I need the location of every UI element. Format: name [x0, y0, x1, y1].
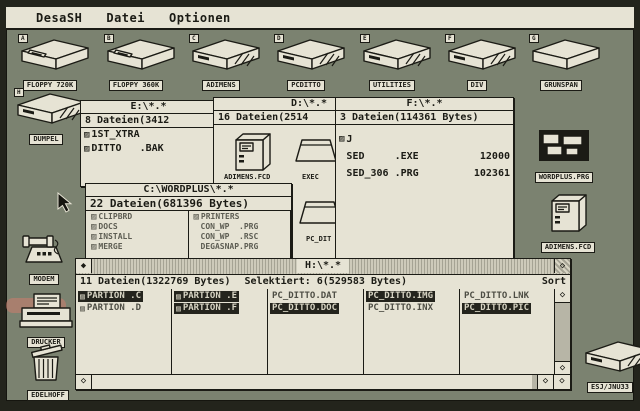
file-entry[interactable]: ▨INSTALL	[88, 232, 186, 242]
file-entry-selected[interactable]: PC_DITTO.IMG	[366, 291, 435, 302]
file-entry-selected[interactable]: PC_DITTO.PIC	[462, 303, 531, 314]
drive-icon-gruenspan[interactable]: G GRÜNSPAN	[519, 36, 603, 95]
file-entry-selected[interactable]: ▨PARTION .F	[174, 303, 239, 314]
file-entry-selected[interactable]: PC_DITTO.DOC	[270, 303, 339, 314]
file-name: PC_DITTO.DAT	[272, 291, 337, 302]
window-f: F:\*.* 3 Dateien(114361 Bytes) ▨J ▨SED .…	[335, 97, 514, 262]
binder-icon	[544, 192, 592, 234]
drive-letter: B	[104, 34, 114, 43]
file-name: CON_WP .PRG	[201, 222, 259, 232]
file-entry-selected[interactable]: ▨PARTION .E	[174, 291, 239, 302]
file-name: PARTION .E	[183, 291, 237, 302]
menu-datei[interactable]: Datei	[106, 11, 145, 25]
window-f-info-text: 3 Dateien(114361 Bytes)	[340, 111, 478, 124]
file-name: 1ST_XTRA	[91, 128, 139, 142]
drive-icon-utilities[interactable]: E UTILITIES	[350, 36, 434, 95]
file-name: CON_WP .RSC	[201, 232, 259, 242]
window-e: E:\*.* 8 Dateien(3412 ▨1ST_XTRA ▨DITTO .…	[80, 100, 217, 187]
drive-letter: E	[360, 34, 370, 43]
drive-icon-label: DUMPEL	[29, 134, 62, 145]
file-name: DOCS	[98, 222, 117, 232]
selected-count-text: Selektiert: 6(529583 Bytes)	[245, 275, 408, 289]
horizontal-scrollbar[interactable]: ◇ ◇ ◇	[76, 374, 570, 389]
file-icon-label: ADIMENS.FCD	[224, 173, 270, 181]
drive-icon-dumpel[interactable]: H DUMPEL	[4, 90, 88, 149]
file-entry[interactable]: PC_DITTO.DAT	[270, 291, 339, 302]
drive-letter: G	[529, 34, 539, 43]
desktop-file-label: WORDPLUS.PRG	[535, 172, 594, 183]
scroll-left-icon[interactable]: ◇	[76, 375, 92, 389]
drive-letter: D	[274, 34, 284, 43]
file-marker-icon: ▨	[176, 303, 181, 314]
file-entry[interactable]: ▨1ST_XTRA	[81, 128, 216, 142]
file-name: INSTALL	[98, 232, 132, 242]
folder-label: PC_DIT	[306, 235, 331, 243]
window-h-info: 11 Dateien(1322769 Bytes) Selektiert: 6(…	[76, 275, 570, 290]
application-icon	[536, 128, 592, 164]
window-sizer-icon[interactable]: ◇	[553, 375, 570, 389]
window-h: ◆ H:\*.* ◇ 11 Dateien(1322769 Bytes) Sel…	[75, 258, 571, 390]
desktop-file-wordplus[interactable]: WORDPLUS.PRG	[518, 128, 610, 187]
window-c: C:\WORDPLUS\*.* 22 Dateien(681396 Bytes)…	[85, 183, 292, 263]
file-count-text: 11 Dateien(1322769 Bytes)	[80, 275, 231, 289]
menu-bar: DesaSH Datei Optionen	[6, 7, 634, 30]
file-entry[interactable]: ▨DITTO .BAK	[81, 142, 216, 156]
printer-icon	[18, 292, 74, 329]
window-e-info-text: 8 Dateien(3412	[85, 114, 169, 127]
drive-icon-label: ADIMENS	[202, 80, 240, 91]
file-name: DITTO .BAK	[91, 142, 163, 156]
file-size: 102361	[474, 165, 510, 182]
file-name: PC_DITTO.INX	[368, 303, 433, 314]
folder-label: EXEC	[302, 173, 319, 181]
drive-icon-floppy360k[interactable]: B FLOPPY 360K	[94, 36, 178, 95]
scrollbar-thumb[interactable]	[92, 375, 532, 389]
folder-icon-exec[interactable]: EXEC	[294, 135, 338, 169]
file-entry[interactable]: ▨DOCS	[88, 222, 186, 232]
file-marker-icon: ▨	[80, 291, 85, 302]
file-name: J	[346, 131, 352, 148]
file-marker-icon: ▨	[91, 232, 96, 242]
file-name: PARTION .D	[87, 303, 141, 314]
file-entry[interactable]: DEGASNAP.PRG	[191, 242, 289, 252]
file-column: ▨PRINTERS CON_WP .PRG CON_WP .RSC DEGASN…	[189, 211, 292, 263]
desktop-file-label: ADIMENS.FCD	[541, 242, 595, 253]
file-name: SED_306 .PRG	[346, 165, 418, 182]
file-entry[interactable]: ▨J	[336, 131, 513, 148]
window-h-file-area: ▨PARTION .C ▨PARTION .D ▨PARTION .E ▨PAR…	[76, 289, 555, 375]
file-name: PC_DITTO.PIC	[464, 303, 529, 314]
file-marker-icon: ▨	[84, 142, 89, 156]
telephone-icon	[22, 232, 66, 266]
desktop-file-adimens[interactable]: ADIMENS.FCD	[522, 192, 614, 257]
file-name: PARTION .F	[183, 303, 237, 314]
file-entry[interactable]: CON_WP .PRG	[191, 222, 289, 232]
window-h-titlebar[interactable]: ◆ H:\*.* ◇	[76, 259, 570, 275]
file-column: PC_DITTO.LNK PC_DITTO.PIC	[460, 289, 555, 375]
drive-icon-label: DIV	[467, 80, 488, 91]
drive-letter: C	[189, 34, 199, 43]
file-marker-icon: ▨	[91, 222, 96, 232]
sort-label[interactable]: Sort	[542, 275, 566, 289]
drive-icon-div[interactable]: F DIV	[435, 36, 519, 95]
file-name: PRINTERS	[201, 212, 240, 222]
trashcan-icon	[26, 344, 70, 382]
file-marker-icon: ▨	[91, 212, 96, 222]
file-column: ▨PARTION .E ▨PARTION .F	[172, 289, 268, 375]
drive-letter: H	[14, 88, 24, 97]
file-column: ▨PARTION .C ▨PARTION .D	[76, 289, 172, 375]
drive-icon-label: GRÜNSPAN	[540, 80, 582, 91]
file-entry[interactable]: PC_DITTO.LNK	[462, 291, 531, 302]
file-marker-icon: ▨	[194, 212, 199, 222]
modem-icon-slot[interactable]: MODEM	[6, 232, 82, 289]
file-name: CLIPBRD	[98, 212, 132, 222]
scroll-up-icon[interactable]: ◇	[555, 289, 570, 303]
file-entry[interactable]: PC_DITTO.INX	[366, 303, 435, 314]
drive-letter: F	[445, 34, 455, 43]
vertical-scrollbar[interactable]: ◇ ◇	[554, 289, 570, 375]
file-name: PC_DITTO.IMG	[368, 291, 433, 302]
file-entry[interactable]: ▨SED .EXE 12000	[336, 148, 513, 165]
drive-icon-label: FLOPPY 360K	[109, 80, 163, 91]
scroll-down-icon[interactable]: ◇	[555, 361, 570, 375]
drive-icon-pcditto[interactable]: D PCDITTO	[264, 36, 348, 95]
file-entry[interactable]: ▨CLIPBRD	[88, 212, 186, 222]
window-h-title: H:\*.*	[297, 259, 349, 273]
scroll-right-icon[interactable]: ◇	[537, 375, 553, 389]
window-c-info: 22 Dateien(681396 Bytes)	[86, 197, 291, 211]
window-f-titlebar[interactable]: F:\*.*	[336, 98, 513, 111]
file-name: PC_DITTO.DOC	[272, 303, 337, 314]
file-column: PC_DITTO.DAT PC_DITTO.DOC	[268, 289, 364, 375]
window-e-info: 8 Dateien(3412	[81, 114, 216, 128]
close-box-icon[interactable]: ◆	[76, 259, 92, 273]
drive-icon-floppy720k[interactable]: A FLOPPY 720K	[8, 36, 92, 95]
file-marker-icon: ▨	[80, 303, 85, 314]
drive-letter: A	[18, 34, 28, 43]
file-name: MERGE	[98, 242, 122, 252]
drive-icon-adimens[interactable]: C ADIMENS	[179, 36, 263, 95]
file-icon-adimens-fcd[interactable]: ADIMENS.FCD	[228, 131, 276, 177]
disk-box-icon	[572, 338, 640, 374]
desktop-file-label: ESJ/JNU33	[587, 382, 633, 393]
window-f-info: 3 Dateien(114361 Bytes)	[336, 111, 513, 125]
modem-label: MODEM	[29, 274, 58, 285]
menu-desash[interactable]: DesaSH	[36, 11, 82, 25]
file-marker-icon: ▨	[91, 242, 96, 252]
file-entry-selected[interactable]: ▨PARTION .C	[78, 291, 143, 302]
file-marker-icon: ▨	[176, 291, 181, 302]
desktop-file-bottom-right[interactable]: ESJ/JNU33	[572, 338, 640, 397]
mouse-cursor-icon	[57, 192, 73, 214]
file-name: DEGASNAP.PRG	[201, 242, 259, 252]
file-column: PC_DITTO.IMG PC_DITTO.INX	[364, 289, 460, 375]
trash-label: EDELHOFF	[27, 390, 69, 401]
file-column: ▨CLIPBRD ▨DOCS ▨INSTALL ▨MERGE	[86, 211, 189, 263]
window-c-titlebar[interactable]: C:\WORDPLUS\*.*	[86, 184, 291, 197]
file-entry[interactable]: CON_WP .RSC	[191, 232, 289, 242]
window-c-info-text: 22 Dateien(681396 Bytes)	[90, 197, 249, 210]
binder-icon	[228, 131, 276, 173]
file-entry[interactable]: ▨PRINTERS	[191, 212, 289, 222]
file-marker-icon: ▨	[84, 128, 89, 142]
file-name: PC_DITTO.LNK	[464, 291, 529, 302]
file-entry[interactable]: ▨PARTION .D	[78, 303, 143, 314]
file-name: SED .EXE	[346, 148, 418, 165]
file-entry[interactable]: ▨MERGE	[88, 242, 186, 252]
file-entry[interactable]: ▨SED_306 .PRG 102361	[336, 165, 513, 182]
menu-optionen[interactable]: Optionen	[169, 11, 231, 25]
screen: DesaSH Datei Optionen A FLOPPY 720K B FL…	[0, 0, 640, 411]
fuller-box-icon[interactable]: ◇	[554, 259, 570, 273]
folder-icon	[294, 135, 338, 165]
window-e-titlebar[interactable]: E:\*.*	[81, 101, 216, 114]
file-marker-icon: ▨	[339, 131, 344, 148]
drive-icon-label: PCDITTO	[287, 80, 325, 91]
drive-icon-label: UTILITIES	[369, 80, 415, 91]
window-d-info-text: 16 Dateien(2514	[218, 111, 308, 124]
file-size: 12000	[480, 148, 510, 165]
file-name: PARTION .C	[87, 291, 141, 302]
